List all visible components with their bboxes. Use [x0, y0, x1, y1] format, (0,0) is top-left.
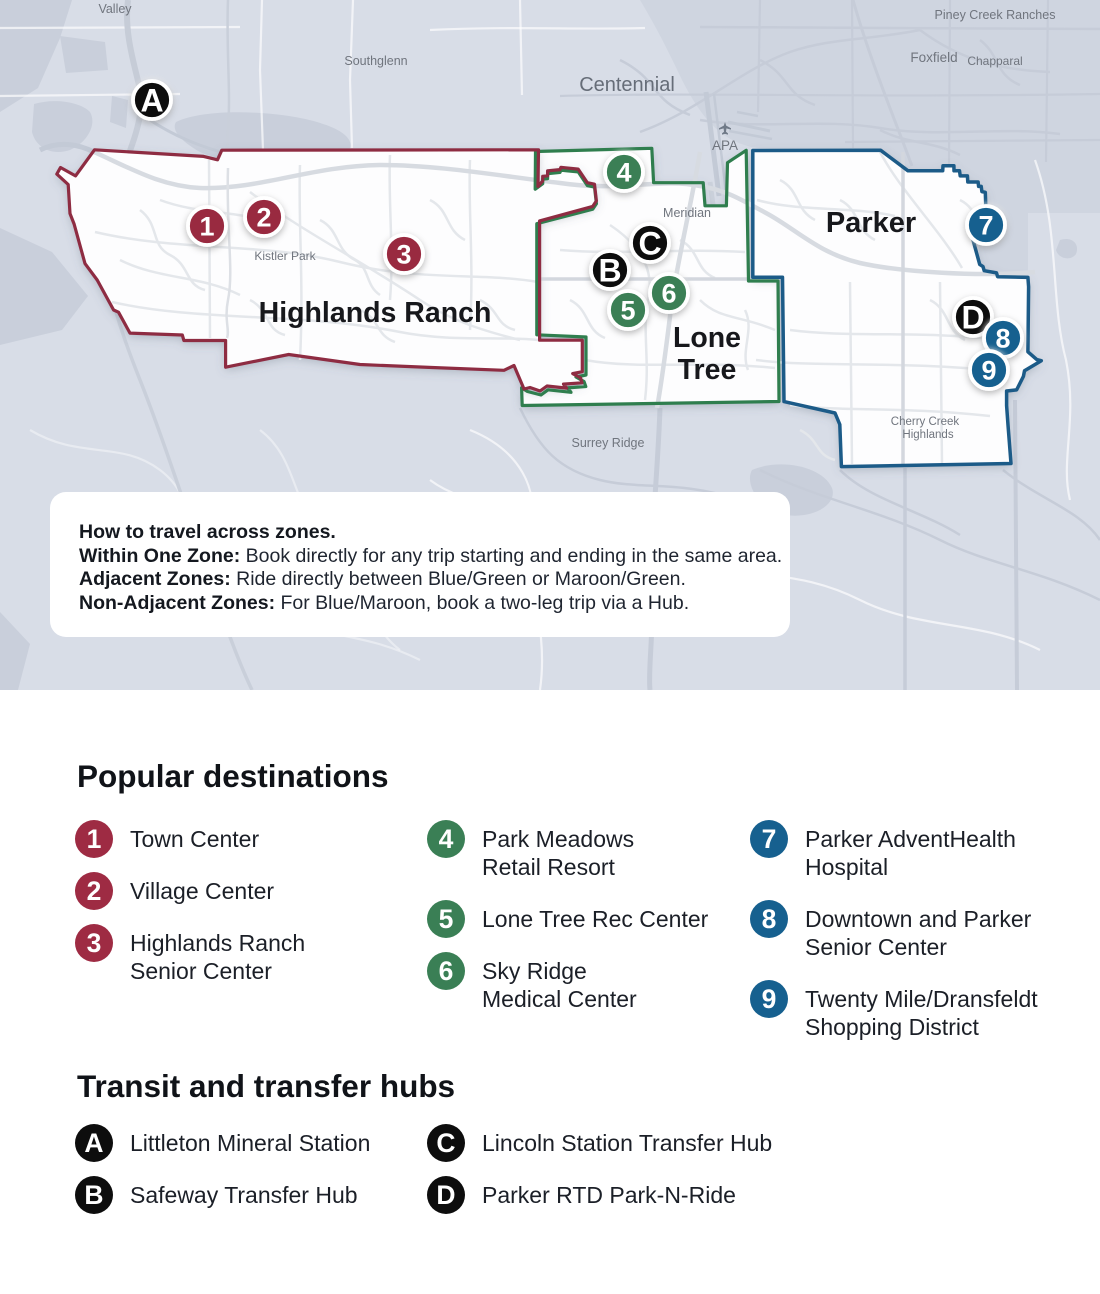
svg-text:B: B — [598, 253, 621, 289]
svg-text:C: C — [638, 226, 661, 262]
svg-text:7: 7 — [978, 211, 993, 241]
svg-text:5: 5 — [620, 296, 635, 326]
svg-text:APA: APA — [712, 138, 738, 153]
svg-text:Valley: Valley — [98, 2, 132, 16]
svg-text:A: A — [140, 83, 163, 119]
svg-text:D: D — [961, 300, 984, 336]
svg-text:Foxfield: Foxfield — [910, 50, 957, 65]
svg-text:4: 4 — [616, 158, 631, 188]
svg-text:Piney Creek Ranches: Piney Creek Ranches — [935, 8, 1056, 22]
svg-text:6: 6 — [661, 279, 676, 309]
svg-text:Parker: Parker — [826, 207, 916, 239]
svg-text:1: 1 — [199, 212, 214, 242]
svg-text:9: 9 — [981, 356, 996, 386]
svg-text:Highlands Ranch: Highlands Ranch — [259, 297, 492, 329]
svg-text:Southglenn: Southglenn — [344, 54, 407, 68]
svg-text:Surrey Ridge: Surrey Ridge — [572, 436, 645, 450]
svg-text:Meridian: Meridian — [663, 206, 711, 220]
svg-text:3: 3 — [396, 240, 411, 270]
svg-text:Lone: Lone — [673, 322, 741, 354]
svg-text:8: 8 — [995, 324, 1010, 354]
svg-text:2: 2 — [256, 203, 271, 233]
svg-text:Centennial: Centennial — [579, 74, 675, 96]
svg-text:Chapparal: Chapparal — [967, 54, 1022, 68]
svg-text:Cherry Creek: Cherry Creek — [891, 416, 960, 428]
svg-text:Kistler Park: Kistler Park — [254, 249, 316, 263]
svg-text:Highlands: Highlands — [902, 429, 953, 441]
svg-text:Tree: Tree — [678, 354, 737, 386]
